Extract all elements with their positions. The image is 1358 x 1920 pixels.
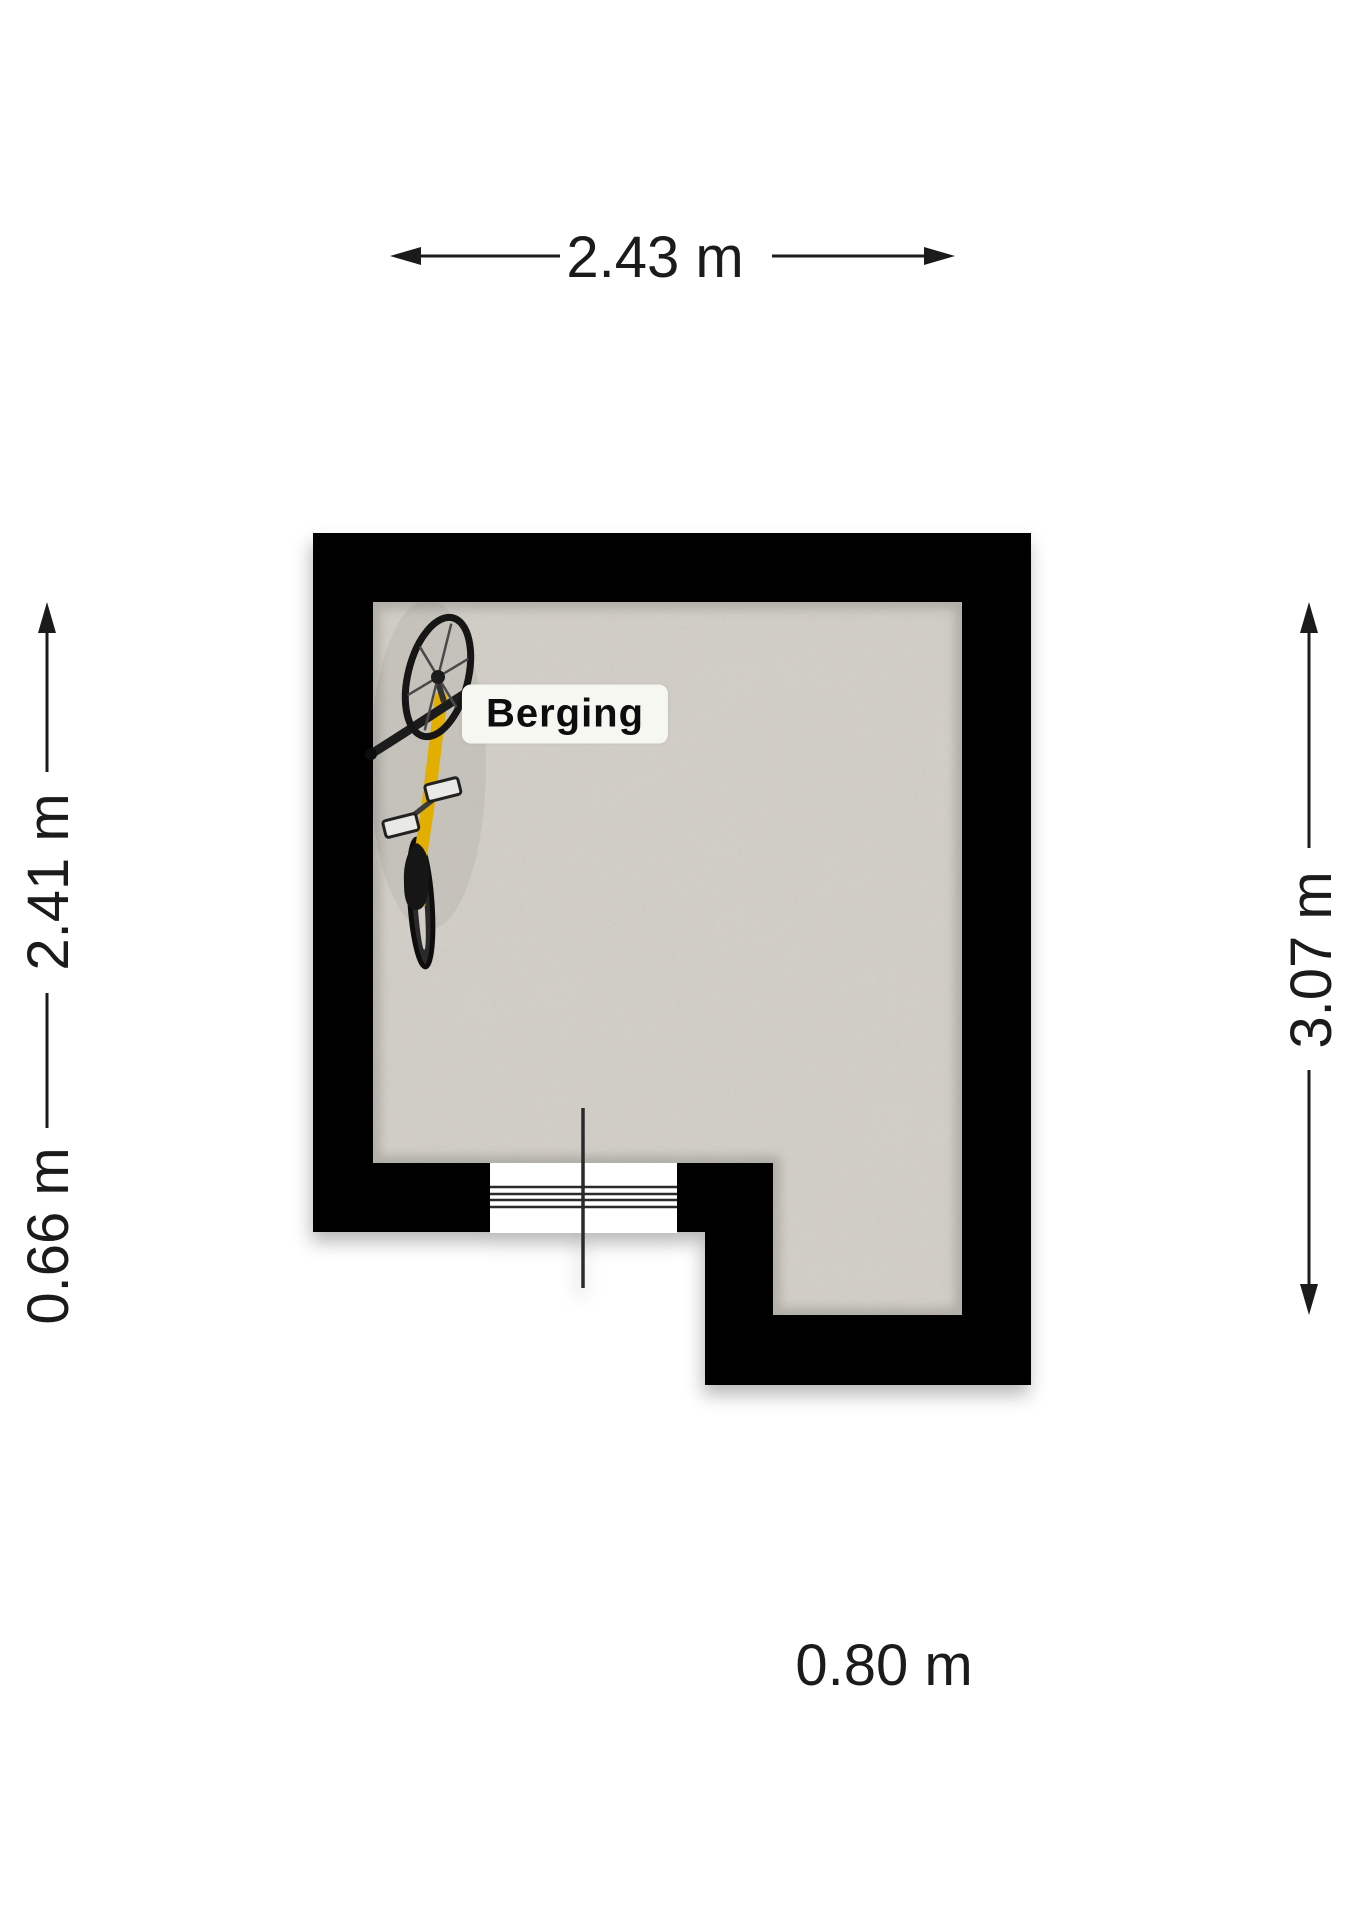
bicycle-grip-left (365, 748, 377, 760)
dimension-label-left-lower: 0.66 m (20, 1147, 78, 1324)
dimension-label-left-upper: 2.41 m (20, 793, 78, 970)
floorplan-canvas: 2.43 m 2.41 m 0.66 m 3.07 m 0.80 m Bergi… (0, 0, 1358, 1920)
floor-plan (313, 533, 1031, 1385)
dimension-label-right: 3.07 m (1283, 871, 1341, 1048)
dimension-label-bottom: 0.80 m (795, 1637, 972, 1695)
room-name-badge: Berging (462, 685, 668, 744)
dimension-label-top: 2.43 m (566, 229, 743, 287)
